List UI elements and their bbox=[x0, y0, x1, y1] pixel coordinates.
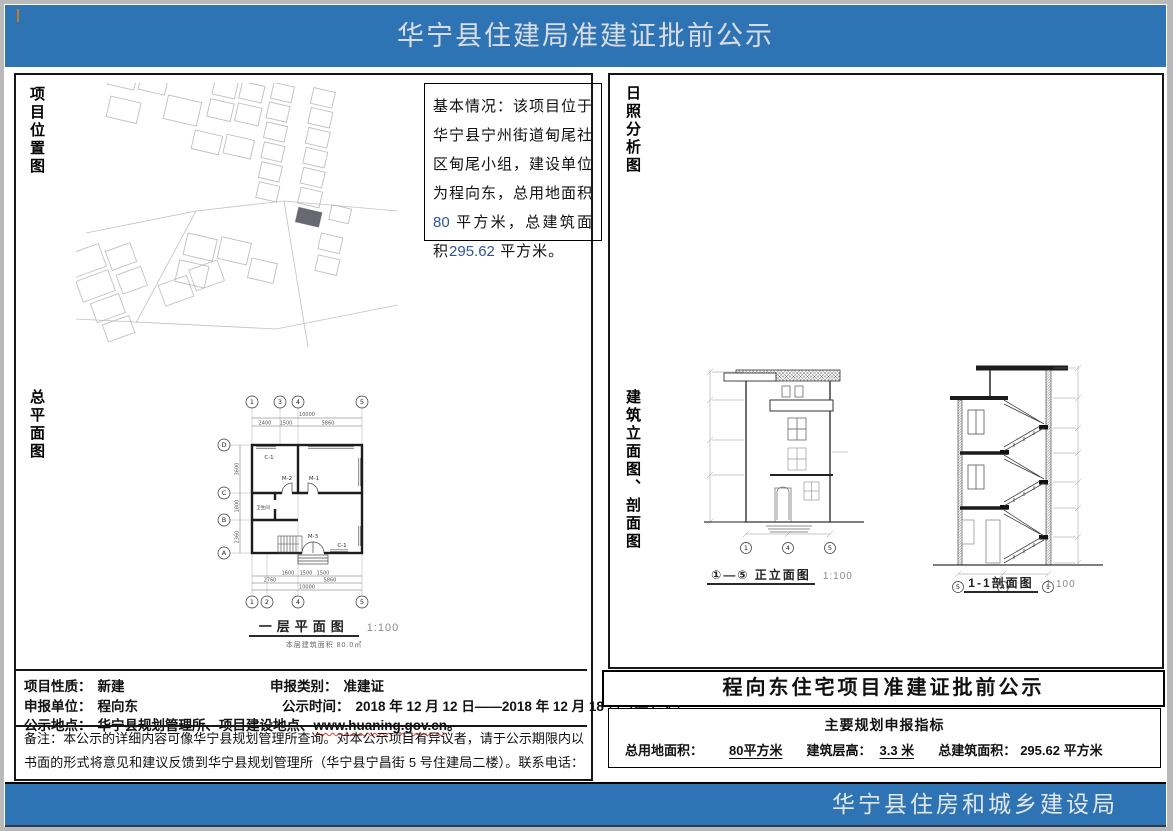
grid-bubble-label: B bbox=[222, 516, 226, 524]
notice-title-box: 程向东住宅项目准建证批前公示 bbox=[602, 670, 1165, 707]
field-project-nature: 项目性质：新建 bbox=[24, 675, 125, 693]
info-divider-top bbox=[16, 669, 587, 671]
section-caption: 1-1剖面图1:100 bbox=[935, 574, 1105, 592]
land-area-label: 总用地面积： bbox=[625, 743, 703, 758]
grid-bubble-label: 5 bbox=[360, 598, 364, 606]
elevation-scale: 1:100 bbox=[823, 571, 853, 582]
section-scale: 1:100 bbox=[1046, 579, 1076, 590]
dim-label: 10000 bbox=[299, 585, 315, 591]
grid-bubble-label: 1 bbox=[250, 598, 254, 606]
section-stairs bbox=[1004, 400, 1044, 563]
dim-label: 2400 bbox=[259, 421, 272, 427]
site-map-drawing bbox=[76, 83, 398, 347]
floor-plan-drawing: 10000 2400 1500 5860 3600 1800 2360 1600… bbox=[190, 388, 420, 616]
grid-bubble-label: 4 bbox=[296, 398, 300, 406]
grid-bubble-label: 1 bbox=[744, 544, 748, 552]
project-nature-label: 项目性质： bbox=[24, 679, 92, 694]
document-canvas: 华宁县住建局准建证批前公示 项目位置图 总平面图 bbox=[0, 0, 1173, 831]
floor-height-label: 建筑层高： bbox=[806, 743, 871, 758]
grid-bubble-label: A bbox=[222, 549, 227, 557]
dim-label: 2760 bbox=[264, 578, 277, 584]
basic-info-box: 基本情况：该项目位于华宁县宁州街道甸尾社区甸尾小组，建设单位为程向东，总用地面积… bbox=[424, 83, 602, 241]
grid-bubble-label: 4 bbox=[786, 544, 790, 552]
basic-info-lead: 基本情况：该项目位于华宁县宁州街道甸尾社区甸尾小组，建设单位为程向东，总用地面积 bbox=[433, 98, 593, 202]
grid-bubble-label: 3 bbox=[278, 398, 282, 406]
grid-bubble-label: 5 bbox=[360, 398, 364, 406]
room-label: C-1 bbox=[337, 543, 346, 549]
grid-bubble-label: 2 bbox=[265, 598, 269, 606]
project-nature-value: 新建 bbox=[98, 679, 125, 694]
floor-plan-caption: 一层平面图1:100 本层建筑面积 80.0㎡ bbox=[224, 616, 424, 650]
section-drawing: 5 4 1 bbox=[928, 350, 1108, 596]
elevation-caption-text: ①—⑤ 正立面图 bbox=[707, 568, 815, 585]
grid-bubble-label: 4 bbox=[296, 598, 300, 606]
section-caption-text: 1-1剖面图 bbox=[964, 576, 1037, 593]
indicators-row: 总用地面积：80平方米建筑层高：3.3 米总建筑面积：295.62 平方米 bbox=[609, 740, 1160, 759]
land-area-value: 80平方米 bbox=[729, 743, 782, 758]
grid-bubble-label: 1 bbox=[250, 398, 254, 406]
left-panel: 项目位置图 总平面图 bbox=[14, 73, 593, 781]
dim-label: 1500 bbox=[300, 571, 313, 577]
dim-label: 5860 bbox=[324, 578, 337, 584]
applicant-label: 申报单位： bbox=[24, 699, 92, 714]
label-location-map: 项目位置图 bbox=[26, 86, 47, 176]
room-label: M-3 bbox=[308, 534, 319, 540]
text-cursor bbox=[17, 9, 19, 22]
dim-label: 10000 bbox=[299, 412, 315, 418]
dim-label: 5860 bbox=[322, 421, 335, 427]
floor-plan-scale: 1:100 bbox=[367, 622, 400, 634]
room-label: 卫生间 bbox=[256, 504, 270, 511]
dim-label: 1500 bbox=[280, 421, 293, 427]
indicators-box: 主要规划申报指标 总用地面积：80平方米建筑层高：3.3 米总建筑面积：295.… bbox=[608, 708, 1161, 768]
right-panel: 日照分析图 建筑立面图、剖面图 bbox=[608, 73, 1164, 669]
label-site-plan: 总平面图 bbox=[26, 389, 47, 461]
apply-category-value: 准建证 bbox=[344, 679, 385, 694]
footer-organization: 华宁县住房和城乡建设局 bbox=[832, 784, 1118, 825]
site-map-parcels-lower bbox=[76, 207, 231, 345]
floor-height-value: 3.3 米 bbox=[880, 743, 915, 758]
site-map-roads bbox=[76, 201, 398, 347]
grid-bubble-label: C bbox=[222, 489, 227, 497]
dim-label: 3600 bbox=[235, 463, 241, 476]
label-elevation-section: 建筑立面图、剖面图 bbox=[622, 389, 643, 551]
indicators-title: 主要规划申报指标 bbox=[609, 715, 1160, 735]
room-label: M-1 bbox=[309, 476, 319, 482]
basic-info-building-area: 295.62 bbox=[449, 243, 495, 260]
elevation-drawing: 1 4 5 bbox=[678, 352, 878, 564]
applicant-value: 程向东 bbox=[98, 699, 139, 714]
floor-plan-entry-steps bbox=[298, 555, 328, 564]
header-bar: 华宁县住建局准建证批前公示 bbox=[5, 5, 1166, 67]
grid-bubble-label: D bbox=[221, 441, 226, 449]
building-area-value: 295.62 平方米 bbox=[1020, 743, 1102, 758]
room-label: C-1 bbox=[264, 455, 273, 461]
basic-info-land-area: 80 bbox=[433, 214, 450, 231]
basic-info-tail: 平方米。 bbox=[495, 243, 564, 260]
dim-label: 2360 bbox=[235, 531, 241, 544]
floor-plan-area-note: 本层建筑面积 80.0㎡ bbox=[224, 640, 424, 650]
grid-bubble-label: 5 bbox=[828, 544, 832, 552]
apply-category-label: 申报类别： bbox=[270, 679, 338, 694]
elevation-building bbox=[704, 370, 864, 532]
notice-title: 程向东住宅项目准建证批前公示 bbox=[604, 672, 1163, 705]
label-sunshine-analysis: 日照分析图 bbox=[622, 85, 643, 175]
dim-label: 1600 bbox=[282, 571, 295, 577]
elevation-dimensions bbox=[707, 369, 848, 537]
floor-plan-stair bbox=[278, 536, 302, 553]
section-openings bbox=[962, 410, 1000, 563]
footer-bar: 华宁县住房和城乡建设局 bbox=[5, 782, 1166, 827]
site-map-subject-parcel bbox=[295, 207, 322, 227]
building-area-label: 总建筑面积： bbox=[938, 743, 1016, 758]
floor-plan-gridlines bbox=[230, 408, 362, 595]
page-title: 华宁县住建局准建证批前公示 bbox=[5, 5, 1166, 67]
dim-label: 1800 bbox=[235, 500, 241, 513]
floor-plan-caption-text: 一层平面图 bbox=[249, 619, 359, 637]
notice-period-label: 公示时间： bbox=[282, 699, 350, 714]
room-label: M-2 bbox=[282, 476, 292, 482]
site-map-parcels-upper bbox=[76, 83, 376, 316]
elevation-caption: ①—⑤ 正立面图1:100 bbox=[685, 566, 875, 584]
field-apply-category: 申报类别：准建证 bbox=[270, 675, 384, 693]
dim-label: 1500 bbox=[317, 571, 330, 577]
field-applicant: 申报单位：程向东 bbox=[24, 695, 138, 713]
